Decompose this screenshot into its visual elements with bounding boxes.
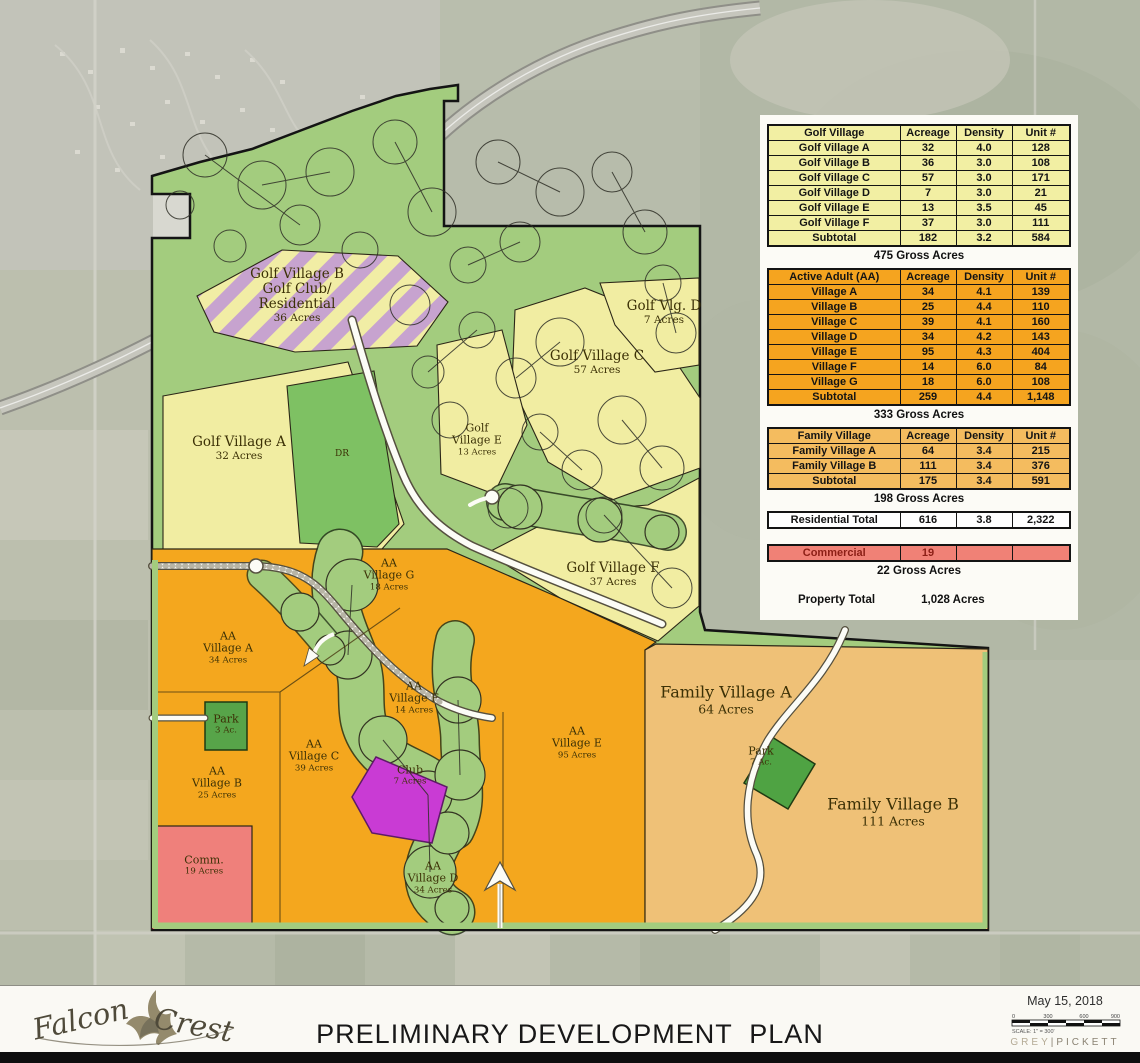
family-village-area [645,644,988,930]
family-village-table-gross: 198 Gross Acres [760,493,1078,505]
svg-text:0: 0 [1012,1014,1015,1020]
property-total: Property Total1,028 Acres [760,594,1078,606]
park-3ac-area [205,702,247,750]
firm-grey: GREY [1010,1037,1050,1048]
falcon-crest-logo: Falcon Crest [26,988,256,1050]
family-village-table: Family VillageAcreageDensityUnit #Family… [767,427,1071,490]
plan-date: May 15, 2018 [1000,994,1130,1008]
commercial-area [152,826,252,930]
title-block-footer: Falcon Crest PRELIMINARY DEVELOPMENT PLA… [0,985,1140,1053]
svg-text:900: 900 [1111,1014,1120,1020]
summary-panel: Golf VillageAcreageDensityUnit #Golf Vil… [760,115,1078,620]
aerial-fields-bottom [0,930,1140,985]
summary-sections: Golf VillageAcreageDensityUnit #Golf Vil… [760,124,1078,606]
golf-village-table: Golf VillageAcreageDensityUnit #Golf Vil… [767,124,1071,247]
scale-caption: SCALE: 1" = 300' [1012,1029,1055,1035]
commercial-row: Commercial19 [767,544,1071,562]
golf-village-table-gross: 475 Gross Acres [760,250,1078,262]
commercial-row-gross: 22 Gross Acres [760,565,1078,577]
firm-logo: GREY|PICKETT [998,1037,1132,1048]
svg-text:300: 300 [1043,1014,1052,1020]
firm-pickett: PICKETT [1056,1037,1119,1048]
svg-text:600: 600 [1079,1014,1088,1020]
residential-total-row: Residential Total6163.82,322 [767,511,1071,529]
active-adult-table-gross: 333 Gross Acres [760,409,1078,421]
bottom-border-bar [0,1052,1140,1063]
active-adult-table: Active Adult (AA)AcreageDensityUnit #Vil… [767,268,1071,406]
sheet-title: PRELIMINARY DEVELOPMENT PLAN [240,1019,900,1050]
development-plan-sheet: Golf Village BGolf Club/Residential36 Ac… [0,0,1140,1063]
logo-flourish [26,988,246,1048]
